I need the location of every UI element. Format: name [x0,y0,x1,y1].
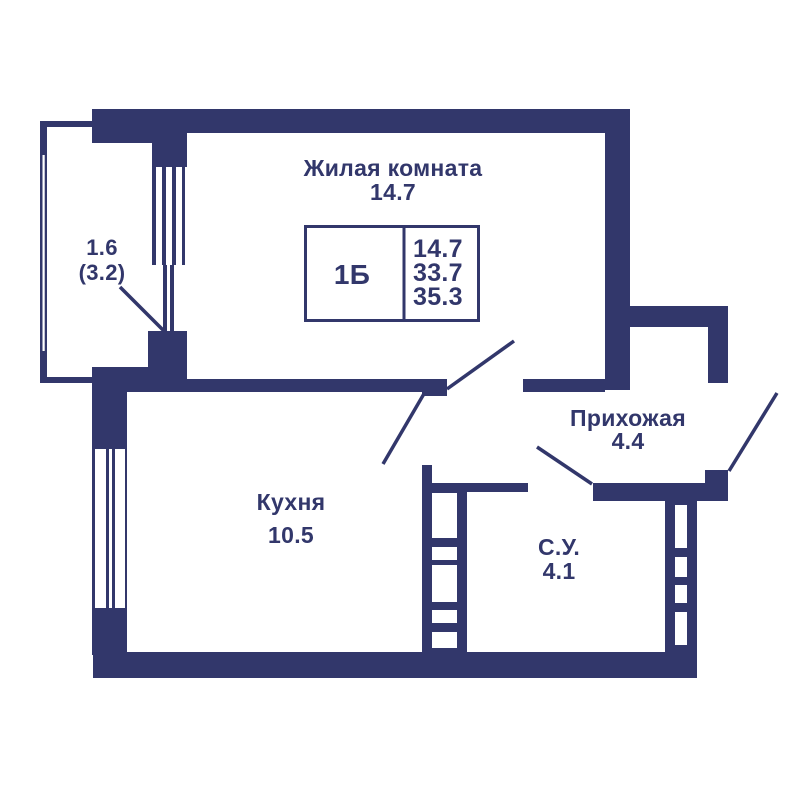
info-box-total-area: 35.3 [413,283,463,311]
kitchen-window [92,447,127,610]
floor-plan: 1Б 14.7 33.7 35.3 Жилая комната 14.7 1.6… [0,0,800,800]
balcony-area: 1.6 [86,235,117,260]
entrance-door-swing-line [729,393,777,471]
bathroom-door-swing-line [537,447,592,484]
info-box: 1Б 14.7 33.7 35.3 [306,227,479,321]
bathroom-label: С.У. [538,534,580,560]
kitchen-label: Кухня [257,489,326,515]
floor-plan-page: 1Б 14.7 33.7 35.3 Жилая комната 14.7 1.6… [0,0,800,800]
kitchen-area: 10.5 [268,522,314,548]
bathroom-area: 4.1 [543,558,576,584]
vent-shaft-right [665,501,697,652]
unit-type-label: 1Б [334,259,370,290]
hallway-area: 4.4 [612,428,645,454]
balcony-area-full: (3.2) [79,260,126,285]
balcony-pointer-line [120,287,164,331]
living-room-door-swing-line [447,341,514,389]
balcony-door [163,265,174,331]
kitchen-door-swing-line [383,392,425,464]
living-room-label: Жилая комната [303,155,483,181]
living-room-area: 14.7 [370,179,416,205]
balcony-window [152,167,185,265]
vent-shaft-left [422,465,467,655]
